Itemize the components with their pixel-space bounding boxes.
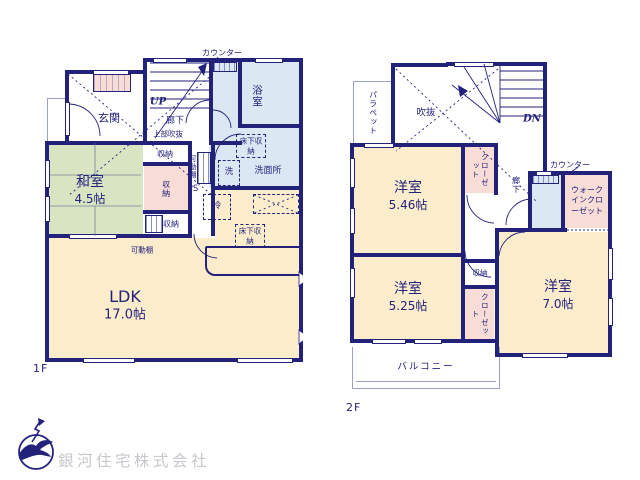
wall (495, 228, 567, 232)
hallway-2f-label: 廊下 (511, 176, 520, 194)
movable-shelf2-label: 可動棚 (131, 247, 154, 256)
kitchen-counter (205, 246, 301, 276)
laundry-label: 洗 (225, 168, 234, 178)
window (372, 339, 406, 344)
wall (461, 143, 498, 147)
company-name: 銀河住宅株式会社 (58, 449, 210, 471)
shoe-cabinet (93, 74, 131, 92)
wall (211, 186, 303, 190)
wall (561, 175, 565, 228)
upper-void-label: 上部吹抜 (153, 131, 183, 140)
room546-size-label: 5.46帖 (389, 199, 428, 213)
wall (238, 62, 242, 128)
wall (350, 339, 465, 343)
stairs-up-label: UP (150, 96, 166, 108)
wall (299, 58, 303, 362)
balcony-label: バルコニー (397, 363, 454, 374)
window (350, 208, 355, 234)
counter-dashed-box (253, 194, 299, 214)
wall (143, 58, 147, 143)
wall (211, 145, 215, 188)
room546-label: 洋室 (394, 180, 422, 196)
window (255, 58, 283, 63)
window (364, 143, 394, 148)
bath-label: 浴室 (251, 85, 263, 108)
fridge-label: 冷 (213, 202, 222, 212)
parapet-label: パラペット (368, 91, 377, 136)
closet-525-label: クローゼット (471, 292, 490, 336)
floor2-label: 2F (346, 402, 361, 415)
wall (391, 63, 448, 67)
floor1-label: 1F (33, 363, 48, 376)
wic-label: ウォークインクローゼット (568, 185, 606, 216)
washitsu-size-label: 4.5帖 (74, 193, 105, 207)
wall (461, 339, 498, 343)
window (237, 358, 293, 363)
storage-shelf (145, 215, 163, 233)
sliding-door-opening (69, 234, 117, 239)
washitsu-room (47, 143, 143, 238)
window (45, 196, 50, 222)
wall (543, 62, 547, 172)
counter-2f (532, 175, 559, 184)
window (522, 353, 568, 358)
storage-bottom-label: 収納 (163, 219, 179, 228)
movable-shelf-unit (197, 152, 211, 184)
ps-label: PS (188, 185, 199, 195)
balcony-inner-line (356, 381, 496, 382)
storage-top-label: 収納 (157, 149, 173, 158)
wall (391, 63, 395, 147)
window (45, 160, 50, 188)
counter-label: カウンター (202, 48, 242, 57)
counter-1f (213, 62, 237, 72)
underfloor-storage2-label: 床下収納 (237, 226, 263, 246)
wall (461, 259, 498, 263)
wall (461, 285, 498, 289)
porch-outline (47, 98, 65, 142)
room70-label: 洋室 (544, 279, 572, 295)
window (153, 58, 187, 63)
floor-plan-1f: カウンター 浴室 玄関 UP 廊下 上部吹抜 収納 収納 収納 可動棚 PS 可… (45, 50, 303, 365)
window (93, 70, 129, 75)
wall (495, 228, 499, 357)
floorplan-canvas: カウンター 浴室 玄関 UP 廊下 上部吹抜 収納 収納 収納 可動棚 PS 可… (0, 0, 640, 480)
void-label: 吹抜 (416, 109, 435, 120)
stairs-down-label: DN (523, 113, 541, 125)
wall (45, 234, 192, 238)
room525-size-label: 5.25帖 (389, 300, 428, 314)
ldk-size-label: 17.0帖 (104, 309, 146, 324)
wall (45, 141, 192, 145)
washitsu-label: 和室 (76, 174, 104, 190)
company-logo-compass-icon (13, 416, 59, 476)
window (454, 62, 494, 67)
wall (143, 162, 192, 166)
hallway-label: 廊下 (166, 116, 184, 126)
window (350, 268, 355, 298)
ldk-label: LDK (109, 288, 141, 306)
window (608, 248, 613, 280)
floor-plan-2f: パラペット 吹抜 DN カウンター 廊下 クローゼット ウォークインクローゼット… (350, 55, 616, 415)
underfloor-storage-label: 床下収納 (238, 136, 264, 156)
window (608, 298, 613, 326)
movable-shelf-label: 可動棚 (189, 155, 197, 179)
room70-size-label: 7.0帖 (542, 298, 573, 312)
wall (461, 143, 465, 343)
counter-2f-label: カウンター (550, 160, 590, 169)
closet-546-label: クローゼット (471, 149, 490, 191)
window (414, 339, 442, 344)
washroom-label: 洗面所 (254, 166, 281, 176)
front-door-opening (65, 102, 70, 136)
storage-mid-label: 収納 (161, 180, 170, 198)
wall (238, 124, 303, 128)
wall (494, 147, 498, 195)
entrance-label: 玄関 (98, 113, 120, 126)
window (350, 158, 355, 188)
window (83, 358, 135, 363)
wall (350, 253, 465, 257)
wall (143, 210, 192, 214)
storage-2f-label: 収納 (473, 270, 488, 279)
room525-label: 洋室 (394, 281, 422, 297)
